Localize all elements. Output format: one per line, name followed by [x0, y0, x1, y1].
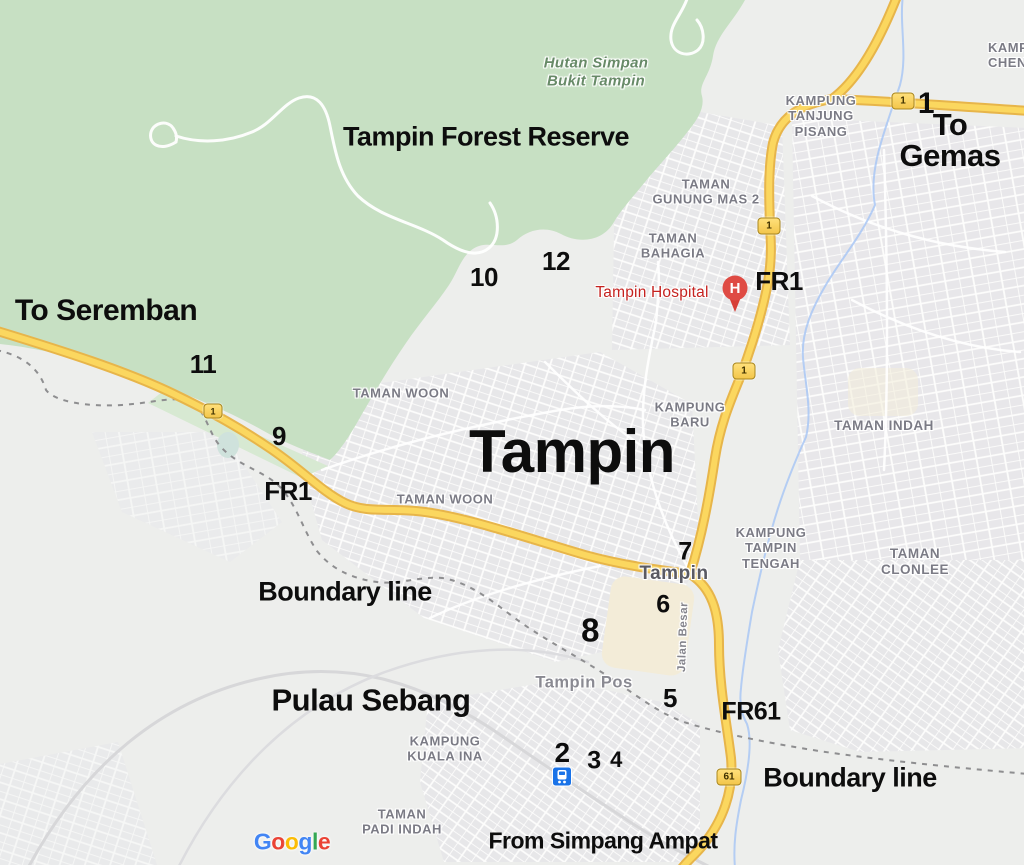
hospital-marker-icon[interactable]: H	[721, 275, 749, 318]
route-1-shield: 1	[204, 404, 223, 419]
route-61-shield-label: 61	[723, 772, 734, 783]
svg-text:H: H	[730, 280, 741, 297]
google-logo-letter: g	[298, 829, 312, 855]
route-1-shield: 1	[733, 363, 756, 380]
map-canvas[interactable]: 1 1 1 1 61 H Hutan Simpan Bukit Tampin K…	[0, 0, 1024, 865]
route-1-shield: 1	[758, 218, 781, 235]
google-logo-letter: G	[254, 829, 271, 855]
google-logo-letter: e	[318, 829, 330, 855]
google-logo-letter: o	[285, 829, 299, 855]
google-logo[interactable]: Google	[254, 829, 330, 856]
pond	[217, 432, 239, 458]
route-1-shield-label: 1	[741, 366, 747, 377]
route-1-shield-label: 1	[210, 406, 215, 416]
route-61-shield: 61	[717, 769, 742, 786]
route-1-shield: 1	[892, 93, 915, 110]
route-1-shield-label: 1	[900, 96, 906, 107]
route-1-shield-label: 1	[766, 221, 772, 232]
train-station-icon[interactable]	[552, 767, 572, 792]
map-base-layers	[0, 0, 1024, 865]
google-logo-letter: o	[271, 829, 285, 855]
